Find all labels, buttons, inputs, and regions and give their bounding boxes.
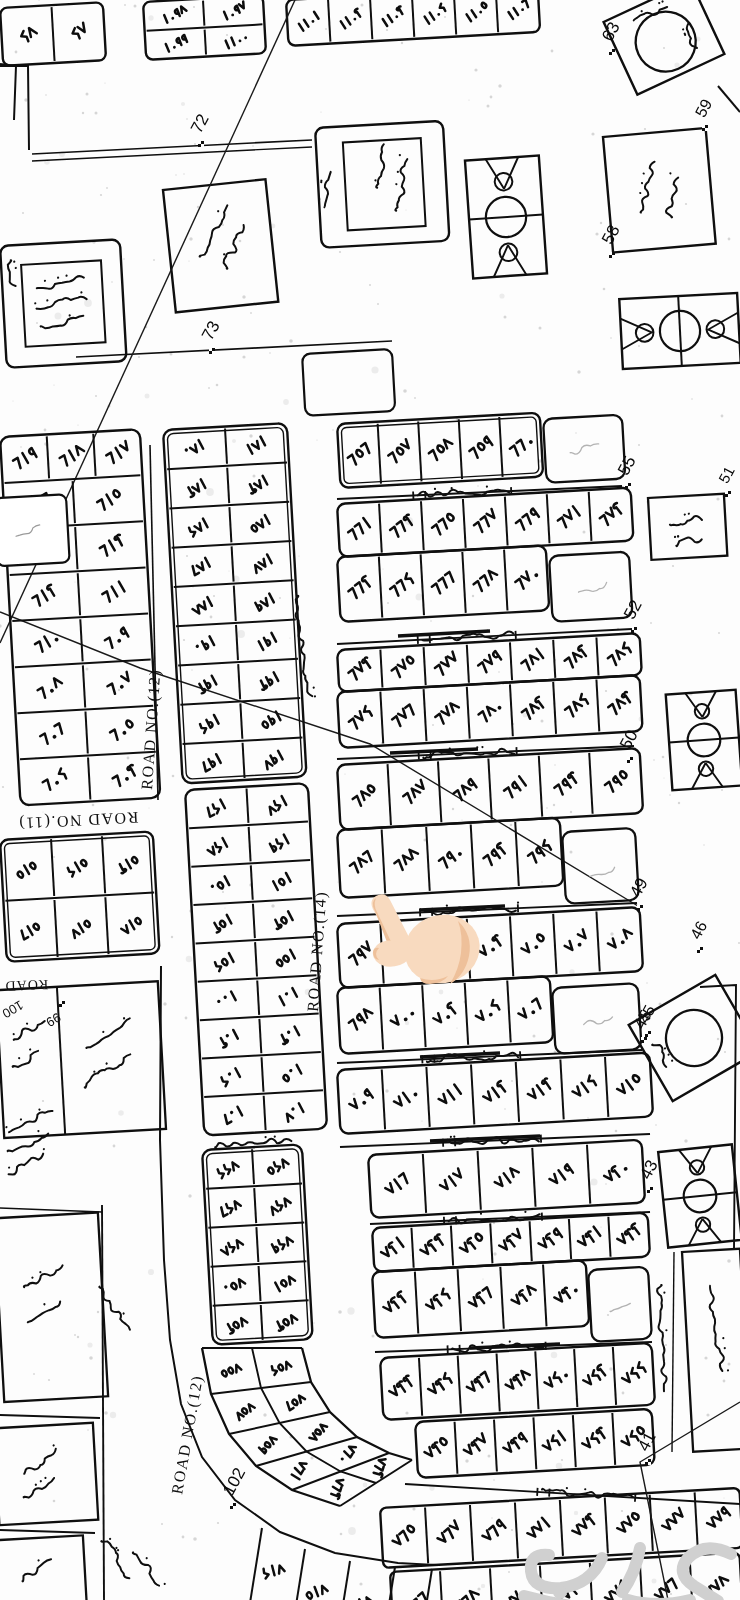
- svg-text:ROAD: ROAD: [4, 977, 48, 994]
